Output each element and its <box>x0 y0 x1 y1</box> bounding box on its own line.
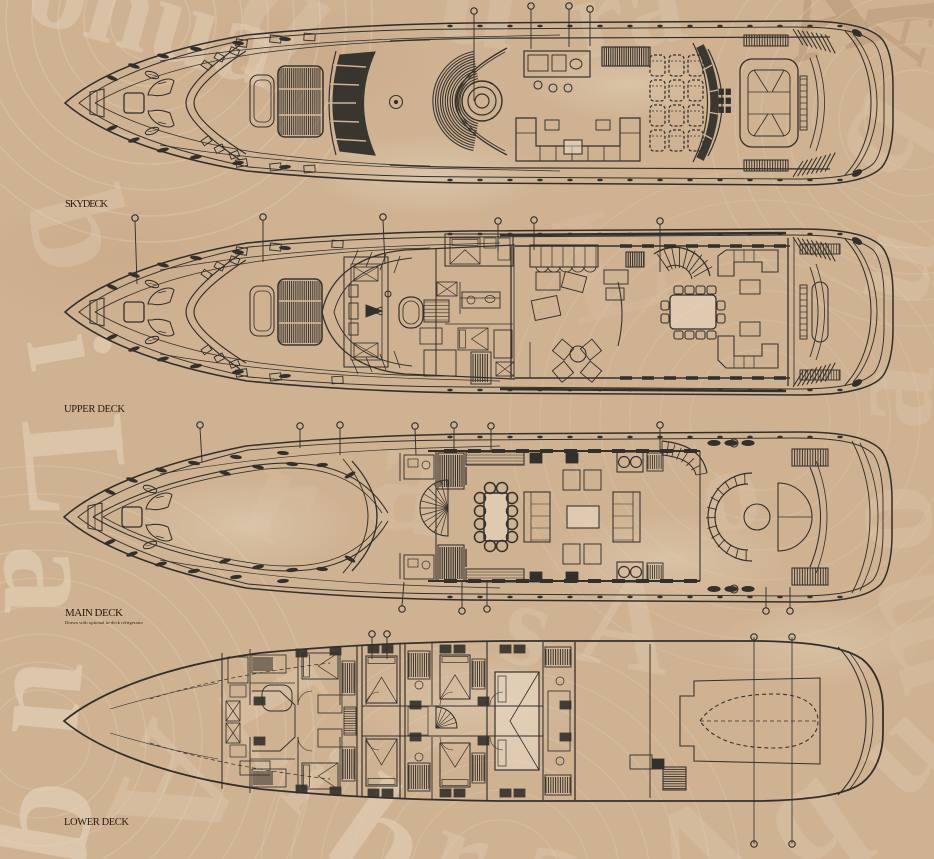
svg-text:UPPER DECK: UPPER DECK <box>64 404 125 415</box>
svg-text:Drawn with optional in-deck re: Drawn with optional in-deck refrigerator <box>65 620 143 625</box>
svg-text:LOWER DECK: LOWER DECK <box>64 817 129 828</box>
svg-text:MAIN DECK: MAIN DECK <box>65 607 123 619</box>
svg-text:SKYDECK: SKYDECK <box>65 199 108 210</box>
